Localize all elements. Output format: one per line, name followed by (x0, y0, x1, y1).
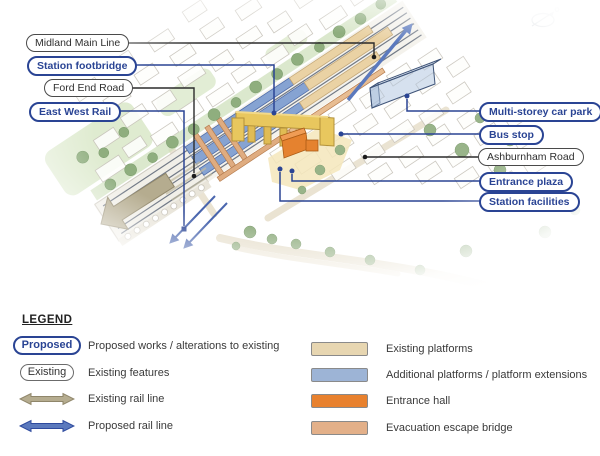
callout-east-west-rail: East West Rail (29, 102, 121, 122)
legend-item-existing-rail: Existing rail line (14, 392, 164, 406)
proposed-rail-arrow-icon (19, 419, 75, 433)
legend-swatch-escape-bridge (311, 421, 368, 435)
callout-midland-main-line: Midland Main Line (26, 34, 129, 52)
legend-item-additional-platforms: Additional platforms / platform extensio… (311, 368, 587, 382)
legend-swatch-entrance-hall (311, 394, 368, 408)
legend-item-existing-platforms: Existing platforms (311, 342, 473, 356)
legend-label-additional-platforms: Additional platforms / platform extensio… (386, 369, 587, 381)
callout-bus-stop: Bus stop (479, 125, 544, 145)
callout-station-facilities: Station facilities (479, 192, 580, 212)
existing-rail-arrow-icon (19, 392, 75, 406)
legend-swatch-existing-platforms (311, 342, 368, 356)
callout-station-footbridge: Station footbridge (27, 56, 137, 76)
legend-item-proposed: Proposed Proposed works / alterations to… (14, 336, 279, 355)
legend-label-proposed-rail: Proposed rail line (88, 420, 173, 432)
legend-item-proposed-rail: Proposed rail line (14, 419, 173, 433)
legend-item-escape-bridge: Evacuation escape bridge (311, 421, 513, 435)
callout-ashburnham-road: Ashburnham Road (478, 148, 584, 166)
callout-entrance-plaza: Entrance plaza (479, 172, 573, 192)
legend-item-entrance-hall: Entrance hall (311, 394, 450, 408)
legend: LEGEND Proposed Proposed works / alterat… (0, 306, 600, 456)
legend-pill-existing: Existing (20, 364, 75, 381)
legend-pill-proposed: Proposed (13, 336, 82, 355)
legend-label-existing-rail: Existing rail line (88, 393, 164, 405)
legend-label-proposed: Proposed works / alterations to existing (88, 340, 279, 352)
callout-multi-storey-car-park: Multi-storey car park (479, 102, 600, 122)
legend-label-existing: Existing features (88, 367, 169, 379)
legend-swatch-additional-platforms (311, 368, 368, 382)
legend-label-escape-bridge: Evacuation escape bridge (386, 422, 513, 434)
legend-label-entrance-hall: Entrance hall (386, 395, 450, 407)
callout-ford-end-road: Ford End Road (44, 79, 133, 97)
legend-item-existing: Existing Existing features (14, 364, 169, 381)
legend-label-existing-platforms: Existing platforms (386, 343, 473, 355)
legend-title: LEGEND (22, 314, 72, 326)
station-masterplan-figure: Midland Main Line Station footbridge For… (0, 0, 600, 456)
north-arrow-icon (532, 8, 559, 27)
